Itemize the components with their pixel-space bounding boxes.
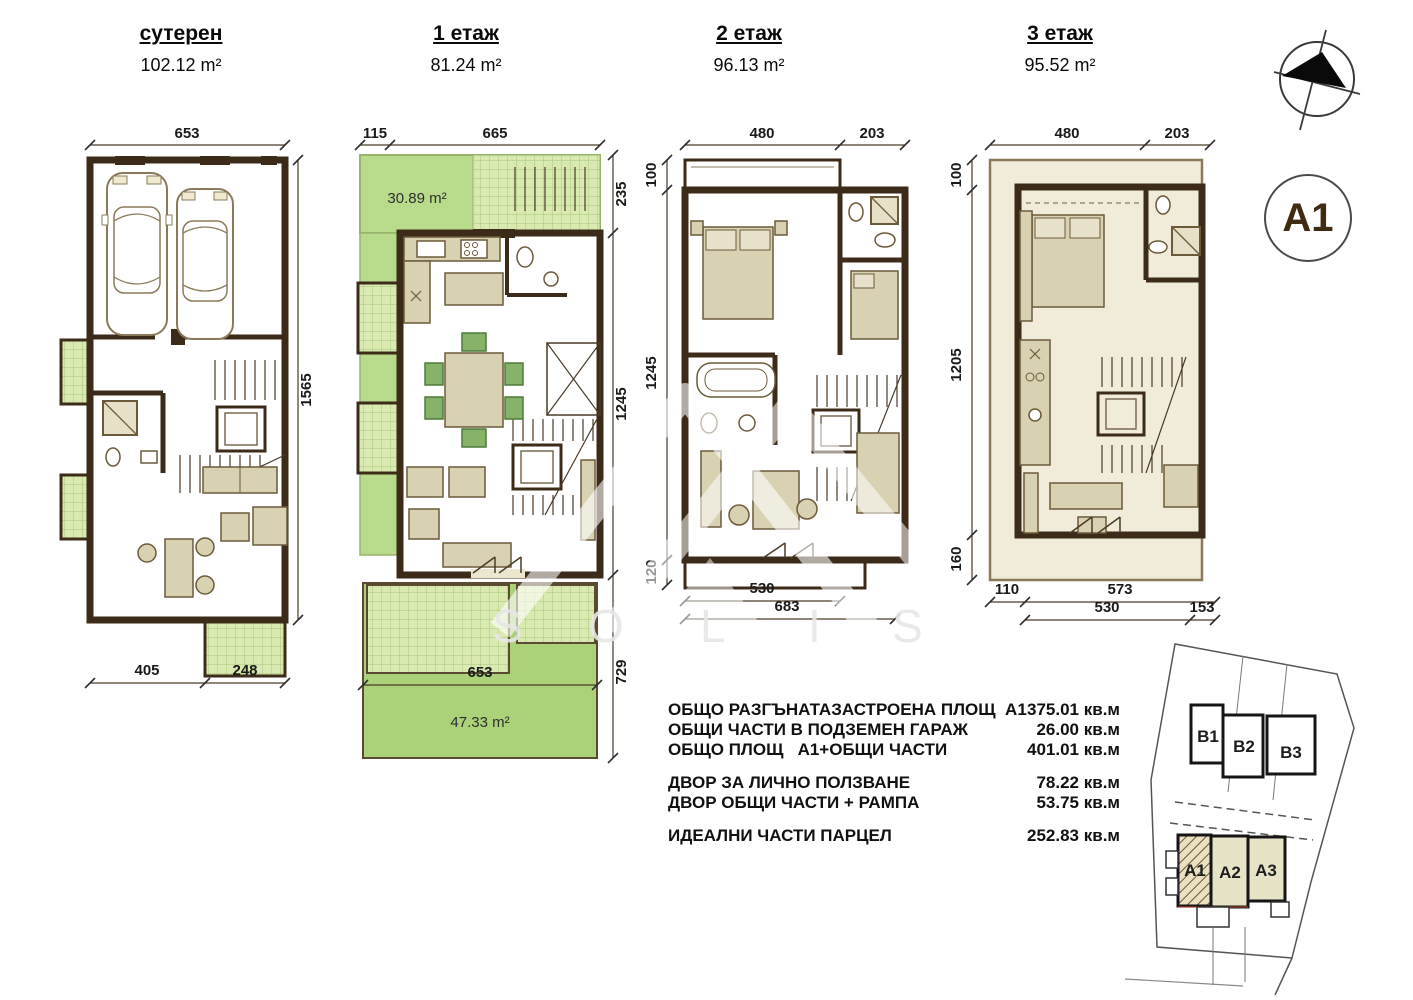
summary-group: ОБЩО РАЗГЪНАТАЗАСТРОЕНА ПЛОЩ А1 375.01 к… [668,700,1120,760]
site-block-label: B3 [1280,743,1302,762]
summary-group: ИДЕАЛНИ ЧАСТИ ПАРЦЕЛ 252.83 кв.м [668,826,1120,846]
desk [165,539,193,597]
summary-label: ДВОР ОБЩИ ЧАСТИ + РАМПА [668,793,1008,813]
wardrobe [1020,211,1032,321]
svg-text:653: 653 [467,664,492,681]
svg-text:160: 160 [950,546,965,571]
dim-bottom: 110 573 530 153 [985,581,1220,625]
svg-text:480: 480 [1054,125,1079,142]
balcony [685,160,840,190]
lintel [115,156,145,165]
car-icon [177,189,233,339]
plan-basement: 653 [55,115,315,695]
svg-text:1565: 1565 [298,373,315,406]
toilet-icon [701,413,717,433]
tv-cabinet [1024,473,1038,533]
balcony [685,560,865,588]
summary-row: ОБЩО ПЛОЩ А1+ОБЩИ ЧАСТИ 401.01 кв.м [668,740,1120,760]
summary-value: 78.22 кв.м [1008,773,1120,793]
chair [196,576,214,594]
svg-text:203: 203 [859,125,884,142]
svg-text:153: 153 [1189,599,1214,616]
couch [857,433,899,513]
side-garden [360,233,400,555]
kitchen-counter [1020,340,1050,465]
svg-text:1205: 1205 [950,348,965,381]
svg-text:573: 573 [1107,581,1132,598]
svg-text:729: 729 [613,659,630,684]
svg-text:530: 530 [749,580,774,597]
sink-icon [739,415,755,431]
summary-row: ОБЩО РАЗГЪНАТАЗАСТРОЕНА ПЛОЩ А1 375.01 к… [668,700,1120,720]
unit-badge-label: A1 [1282,196,1333,241]
sofa [443,543,511,567]
annex [1166,878,1178,895]
site-block-label: A1 [1184,861,1206,880]
summary-row: ДВОР ОБЩИ ЧАСТИ + РАМПА 53.75 кв.м [668,793,1120,813]
unit-badge: A1 [1264,174,1352,262]
parcel-boundary [1151,644,1354,958]
armchair [253,507,287,545]
dining-table [425,333,523,447]
sink-icon [875,233,895,247]
summary-label: ОБЩО ПЛОЩ А1+ОБЩИ ЧАСТИ [668,740,1008,760]
north-compass-icon [1262,22,1372,137]
planter-box [61,475,90,539]
ground-line [1125,979,1243,986]
terrace-area-label: 30.89 m² [387,190,446,207]
svg-text:100: 100 [645,162,660,187]
toilet-icon [1156,196,1170,214]
planter-box [61,340,90,404]
svg-text:480: 480 [749,125,774,142]
car-icon [102,173,172,335]
summary-label: ОБЩИ ЧАСТИ В ПОДЗЕМЕН ГАРАЖ [668,720,1008,740]
floor-header-3: 3 етаж 95.52 m² [950,22,1170,76]
armchair [449,467,485,497]
floor-header-basement: сутерен 102.12 m² [71,22,291,76]
area-summary: ОБЩО РАЗГЪНАТАЗАСТРОЕНА ПЛОЩ А1 375.01 к… [668,700,1120,846]
floor-header-2: 2 етаж 96.13 m² [639,22,859,76]
summary-value: 26.00 кв.м [1008,720,1120,740]
cabinet [581,460,595,540]
floor-area: 95.52 m² [950,55,1170,76]
sink-icon [544,272,558,286]
summary-value: 375.01 кв.м [1027,700,1120,720]
dim-top: 115 665 [355,125,605,150]
toilet-icon [849,203,863,221]
dim-right: 235 1245 729 [608,150,630,763]
toilet-icon [106,448,120,466]
sofa [1050,483,1122,509]
floor-header-1: 1 етаж 81.24 m² [356,22,576,76]
summary-row: ДВОР ЗА ЛИЧНО ПОЛЗВАНЕ 78.22 кв.м [668,773,1120,793]
floor-title: сутерен [71,22,291,46]
floor-title: 3 етаж [950,22,1170,46]
bed [691,221,787,319]
bathtub-icon [697,363,775,397]
kitchen-counter [404,237,503,323]
wc-room [507,233,567,295]
svg-text:203: 203 [1164,125,1189,142]
floor-area: 81.24 m² [356,55,576,76]
chair [797,499,817,519]
desk [753,471,799,529]
site-block-label: A2 [1219,863,1241,882]
garden-paved [367,585,509,673]
svg-text:665: 665 [482,125,507,142]
dim-left: 100 1205 160 [950,155,977,585]
pillow [854,274,874,288]
lintel [200,156,230,165]
svg-text:100: 100 [950,162,965,187]
side-table [409,509,439,539]
svg-text:115: 115 [363,125,387,142]
terrace-paved [473,155,600,233]
summary-label: ДВОР ЗА ЛИЧНО ПОЛЗВАНЕ [668,773,1008,793]
site-plan: B1 B2 B3 A1 A2 A3 [1125,630,1413,995]
svg-text:120: 120 [645,559,660,584]
svg-text:405: 405 [134,662,159,679]
annex [1271,902,1289,917]
floor-area: 96.13 m² [639,55,859,76]
chair [196,538,214,556]
shower-icon [871,197,898,224]
armchair [407,467,443,497]
svg-text:1245: 1245 [645,356,660,389]
summary-group: ДВОР ЗА ЛИЧНО ПОЛЗВАНЕ 78.22 кв.м ДВОР О… [668,773,1120,813]
floor-area: 102.12 m² [71,55,291,76]
site-block-label: B2 [1233,737,1255,756]
planter-box [358,403,400,473]
parcel-boundary [1275,958,1292,995]
site-block-label: A3 [1255,861,1277,880]
summary-value: 252.83 кв.м [1008,826,1120,846]
armchair [1164,465,1198,507]
dim-top: 480 203 [985,125,1215,150]
dim-left: 100 1245 120 [645,155,672,590]
dim-top: 653 [85,125,290,150]
svg-text:110: 110 [995,581,1019,598]
summary-row: ИДЕАЛНИ ЧАСТИ ПАРЦЕЛ 252.83 кв.м [668,826,1120,846]
svg-text:653: 653 [174,125,199,142]
dim-top: 480 203 [680,125,910,150]
svg-text:683: 683 [774,598,799,615]
cabinet [701,451,721,527]
garden-paved [517,585,595,643]
chair [138,544,156,562]
double-door [763,543,813,558]
svg-text:530: 530 [1094,599,1119,616]
plan-floor1: 115 665 30.89 m² [345,115,635,795]
plan-floor3: 480 203 100 1205 160 [950,115,1240,645]
shower-icon [103,401,137,435]
svg-text:1245: 1245 [613,387,630,420]
site-block-label: B1 [1197,727,1219,746]
floorplan-sheet: сутерен 102.12 m² 1 етаж 81.24 m² 2 етаж… [0,0,1413,1000]
planter-box [358,283,400,353]
summary-label: ИДЕАЛНИ ЧАСТИ ПАРЦЕЛ [668,826,1008,846]
garden-area-label: 47.33 m² [450,714,509,731]
chair [729,505,749,525]
sink-icon [141,451,157,463]
summary-label: ОБЩО РАЗГЪНАТАЗАСТРОЕНА ПЛОЩ А1 [668,700,1027,720]
summary-value: 53.75 кв.м [1008,793,1120,813]
lintel [261,156,277,165]
side-table [221,513,249,541]
dim-right: 1565 [293,155,315,625]
annex [1166,851,1178,868]
floor-title: 2 етаж [639,22,859,46]
summary-row: ОБЩИ ЧАСТИ В ПОДЗЕМЕН ГАРАЖ 26.00 кв.м [668,720,1120,740]
floor-title: 1 етаж [356,22,576,46]
shower-icon [1172,227,1200,255]
svg-text:248: 248 [232,662,257,679]
bed [1032,215,1104,307]
annex [1197,907,1229,927]
plan-floor2: 480 203 100 1245 120 [645,115,935,635]
toilet-icon [517,247,533,267]
closet [547,343,600,415]
svg-text:235: 235 [613,181,630,206]
summary-value: 401.01 кв.м [1008,740,1120,760]
sink-icon [1149,241,1167,253]
